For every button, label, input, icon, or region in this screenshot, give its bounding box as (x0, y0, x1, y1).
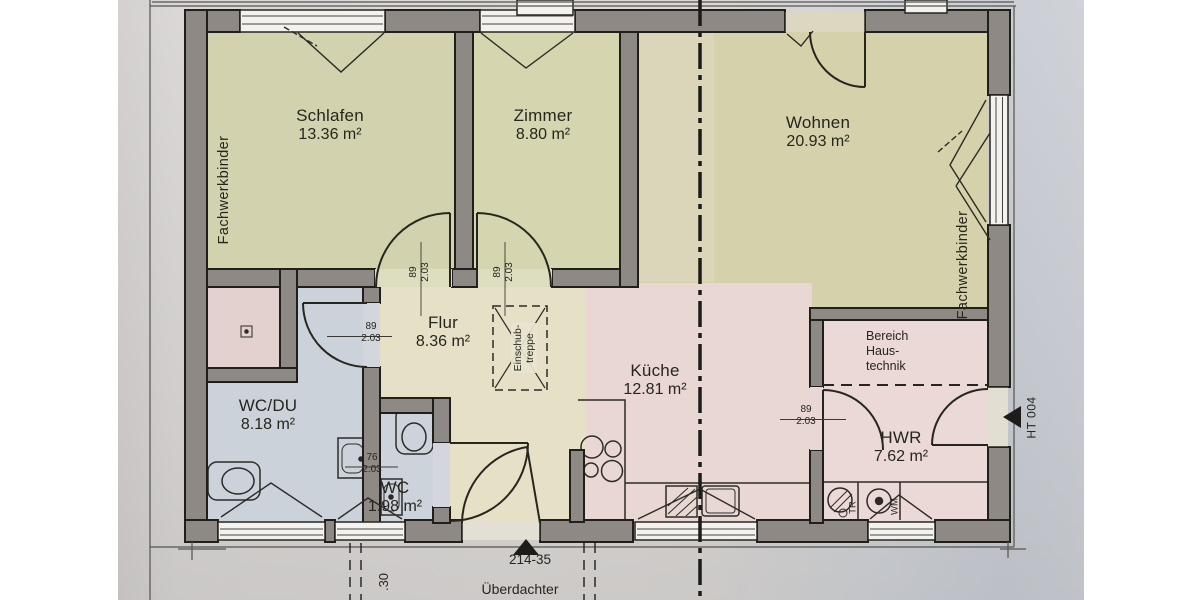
room-name: Zimmer (470, 106, 616, 126)
door-dim-wcdu: 89 2.03 (349, 321, 393, 345)
entry-door-code-label: HT 004 (1025, 389, 1038, 447)
room-area: 8.80 m² (470, 126, 616, 145)
room-label-kueche: Küche 12.81 m² (592, 361, 718, 400)
floorplan-photo: Schlafen 13.36 m² Zimmer 8.80 m² Wohnen … (0, 0, 1200, 600)
window-wcdu (218, 522, 325, 540)
room-label-hwr: HWR 7.62 m² (843, 428, 959, 467)
dryer-label: TR (848, 495, 859, 521)
room-area: 20.93 m² (745, 133, 891, 152)
room-label-schlafen: Schlafen 13.36 m² (255, 106, 405, 145)
room-label-wohnen: Wohnen 20.93 m² (745, 113, 891, 152)
room-name: Küche (592, 361, 718, 381)
room-area: 1.98 m² (353, 498, 437, 517)
room-label-wcdu: WC/DU 8.18 m² (206, 396, 330, 435)
loft-ladder-label: Einschub- treppe (510, 303, 538, 393)
fachwerkbinder-right-label: Fachwerkbinder (955, 205, 971, 325)
door-dim-wc: 76 2.03 (350, 452, 394, 476)
window-wohnen (990, 95, 1008, 225)
room-label-wc: WC 1.98 m² (353, 478, 437, 517)
room-area: 12.81 m² (592, 381, 718, 400)
window-schlafen (240, 10, 385, 32)
room-area: 8.18 m² (206, 416, 330, 435)
door-dim-hwr: 89 2.03 (784, 404, 828, 428)
room-label-zimmer: Zimmer 8.80 m² (470, 106, 616, 145)
room-name: WC (353, 478, 437, 498)
room-name: WC/DU (206, 396, 330, 416)
room-name: Wohnen (745, 113, 891, 133)
window-wc (335, 522, 405, 540)
room-name: Flur (385, 313, 501, 333)
covered-area-label: Überdachter (460, 581, 580, 598)
room-name: Schlafen (255, 106, 405, 126)
cut-dimension-label: .30 (376, 561, 390, 600)
door-dim-zimmer: 89 2.03 (491, 249, 517, 295)
floorplan-drawing (0, 0, 1200, 600)
room-name: HWR (843, 428, 959, 448)
fachwerkbinder-left-label: Fachwerkbinder (216, 130, 232, 250)
room-area: 7.62 m² (843, 448, 959, 467)
room-area: 8.36 m² (385, 333, 501, 352)
plan-number-label: 214-35 (474, 552, 586, 568)
washer-label: WM (890, 494, 901, 520)
haustechnik-label: Bereich Haus- technik (866, 329, 956, 374)
window-kueche (635, 522, 757, 540)
room-area: 13.36 m² (255, 126, 405, 145)
schlafen-floor (195, 14, 460, 282)
room-label-flur: Flur 8.36 m² (385, 313, 501, 352)
window-hwr (868, 522, 935, 540)
door-dim-schlafen: 89 2.03 (407, 249, 433, 295)
